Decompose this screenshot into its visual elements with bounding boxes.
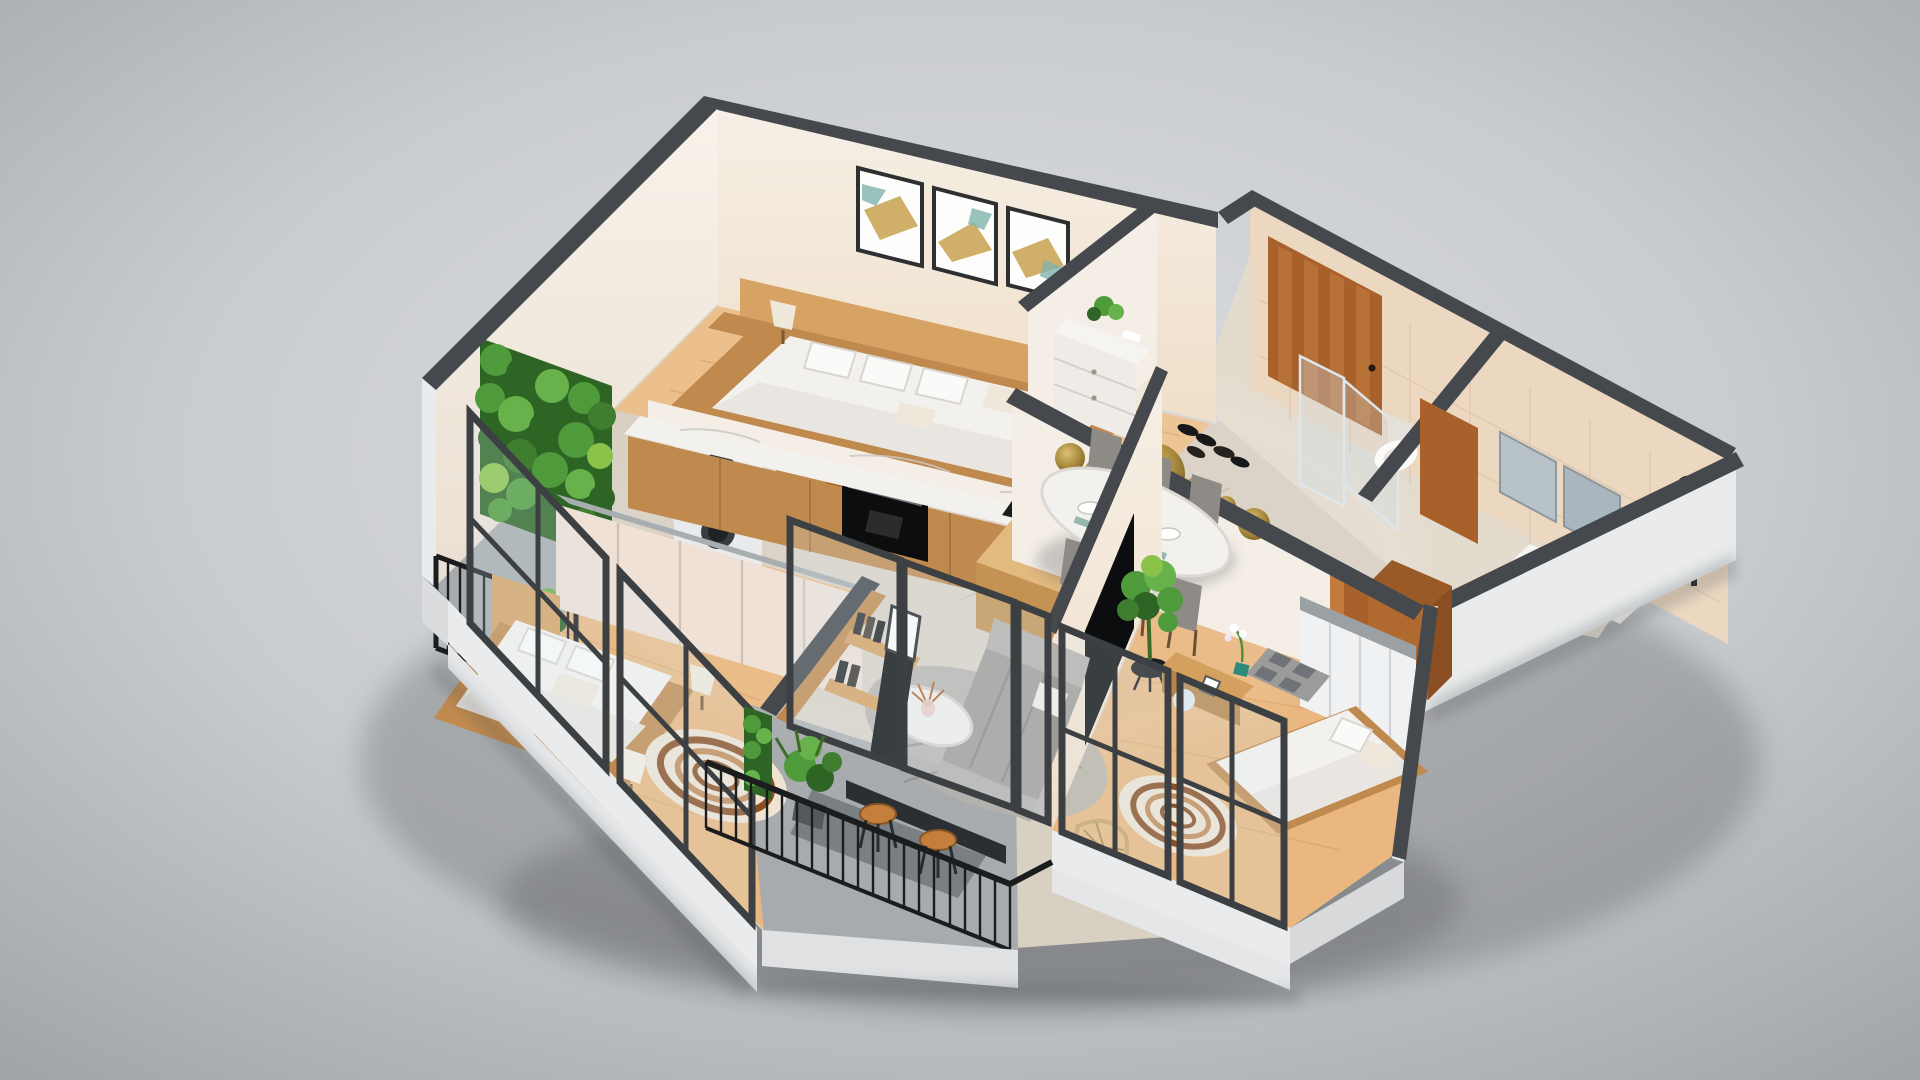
art-frame-2 <box>934 188 996 284</box>
slider-panel-c <box>1018 604 1048 822</box>
drawer-knob-2 <box>1091 395 1096 400</box>
front-door-handle <box>1368 364 1375 371</box>
drawer-knob-1 <box>1091 369 1096 374</box>
floorplan-render: 3D isometric cutaway floor plan of a fur… <box>0 0 1920 1080</box>
slider-panel-b <box>904 562 1014 808</box>
wc-glass-screen <box>1300 356 1344 506</box>
apartment-isometric-scene: 3D isometric cutaway floor plan of a fur… <box>0 0 1920 1080</box>
art-frame-1 <box>858 168 922 266</box>
slider-panel-a <box>790 520 900 766</box>
